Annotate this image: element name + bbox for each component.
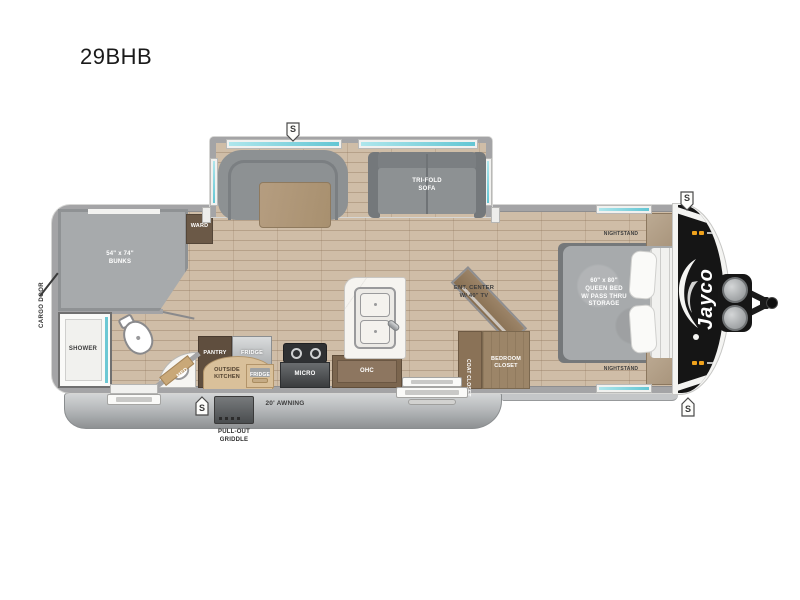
bedroom-window [596, 384, 652, 393]
kitchen-counter [344, 277, 406, 359]
kitchen-sink [354, 287, 396, 349]
griddle-label: PULL-OUT GRIDDLE [204, 429, 264, 445]
marker-light [699, 361, 704, 365]
main-entry-step [396, 387, 468, 398]
marker-dash [707, 362, 715, 364]
ohc-label: OHC [332, 368, 402, 376]
stabilizer-badge: S [286, 122, 300, 142]
cargo-door-label: CARGO DOOR [37, 275, 47, 335]
coat-closet-label: COAT CLOSET [469, 359, 471, 361]
lower-skirt [502, 393, 678, 401]
floorplan-canvas: 29BHB 20' AWNING PULL-OUT GRIDDLE 54" x … [0, 0, 800, 600]
bunks-label: 54" x 74" BUNKS [80, 251, 160, 267]
outside-kitchen-label: OUTSIDE KITCHEN [205, 367, 249, 381]
slide-bracket [491, 207, 500, 223]
bedroom-window [596, 205, 652, 214]
slide-window [226, 139, 342, 149]
pantry-label: PANTRY [197, 350, 233, 357]
main-entry-step [402, 377, 462, 387]
nightstand-top-label: NIGHTSTAND [598, 231, 644, 238]
dinette-table [259, 182, 331, 228]
cap-trim-slash [678, 375, 710, 392]
ent-center-label: ENT. CENTER W/ 40" TV [442, 285, 506, 300]
propane-plate [718, 274, 752, 332]
cooktop [283, 343, 327, 363]
bath-entry-step [107, 394, 161, 405]
griddle-dots [219, 417, 241, 420]
propane-tank [722, 305, 748, 331]
pillow [628, 304, 657, 354]
marker-light [699, 231, 704, 235]
sofa-label: TRI-FOLD SOFA [378, 178, 476, 194]
slide-side-window [210, 158, 218, 206]
marker-light [692, 361, 697, 365]
propane-tank [722, 277, 748, 303]
shower-label: SHOWER [60, 346, 106, 354]
entry-handle [408, 399, 456, 405]
slide-bracket [202, 207, 211, 223]
nightstand-bottom-label: NIGHTSTAND [598, 366, 644, 373]
marker-dash [707, 232, 715, 234]
bunk-window-trim [88, 209, 160, 214]
stabilizer-badge: S [195, 396, 209, 416]
bedroom-closet-label: BEDROOM CLOSET [482, 356, 530, 370]
fridge-label: FRIDGE [232, 350, 272, 357]
page-title: 29BHB [80, 46, 152, 68]
stabilizer-badge: S [680, 191, 694, 211]
marker-light [692, 231, 697, 235]
outside-fridge-label: FRIDGE [246, 372, 274, 379]
micro-label: MICRO [280, 371, 330, 379]
bath-door-opening [110, 384, 158, 394]
queen-bed-label: 60" x 80" QUEEN BED W/ PASS THRU STORAGE [560, 278, 648, 309]
stabilizer-badge: S [681, 397, 695, 417]
ward-label: WARD [184, 223, 215, 230]
slide-window [358, 139, 478, 149]
brand-logo: Jayco [694, 249, 718, 349]
